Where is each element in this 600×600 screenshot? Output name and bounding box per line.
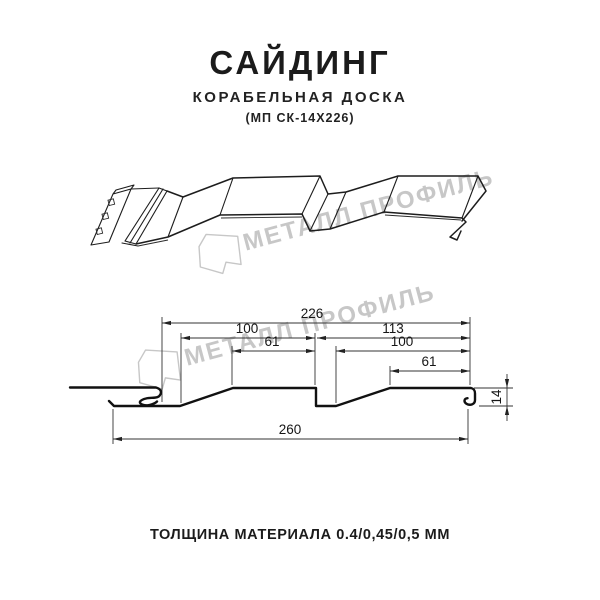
header: САЙДИНГ КОРАБЕЛЬНАЯ ДОСКА (МП СК-14Х226) (0, 46, 600, 125)
dimension-lines (113, 323, 507, 439)
perspective-drawing: МЕТАЛЛ ПРОФИЛЬ (80, 145, 520, 270)
product-subtitle: КОРАБЕЛЬНАЯ ДОСКА (0, 90, 600, 105)
dim-label-left-crest: 61 (264, 334, 279, 349)
page-root: { "header": { "title": "САЙДИНГ", "subti… (0, 0, 600, 600)
dimension-arrows (113, 321, 509, 441)
dim-label-profile-height: 14 (489, 389, 504, 405)
dim-label-right-pitch: 100 (391, 334, 414, 349)
dim-label-total-width: 260 (279, 422, 302, 437)
profile-flange-and-lock (70, 388, 161, 406)
profile-body (109, 388, 475, 406)
product-title: САЙДИНГ (0, 46, 600, 79)
metall-profil-logo-icon (193, 227, 246, 279)
thickness-note: ТОЛЩИНА МАТЕРИАЛА 0.4/0,45/0,5 ММ (0, 527, 600, 543)
dim-label-right-crest: 61 (421, 354, 436, 369)
nail-strip (91, 185, 159, 245)
cross-section-drawing: МЕТАЛЛ ПРОФИЛЬ 226 100 113 61 100 61 260… (55, 285, 530, 460)
nail-strip-holes (96, 199, 115, 235)
dim-label-left-pitch: 100 (236, 321, 259, 336)
product-model-code: (МП СК-14Х226) (0, 112, 600, 125)
lock-fold (122, 188, 167, 246)
dim-label-overall-width: 226 (301, 306, 324, 321)
